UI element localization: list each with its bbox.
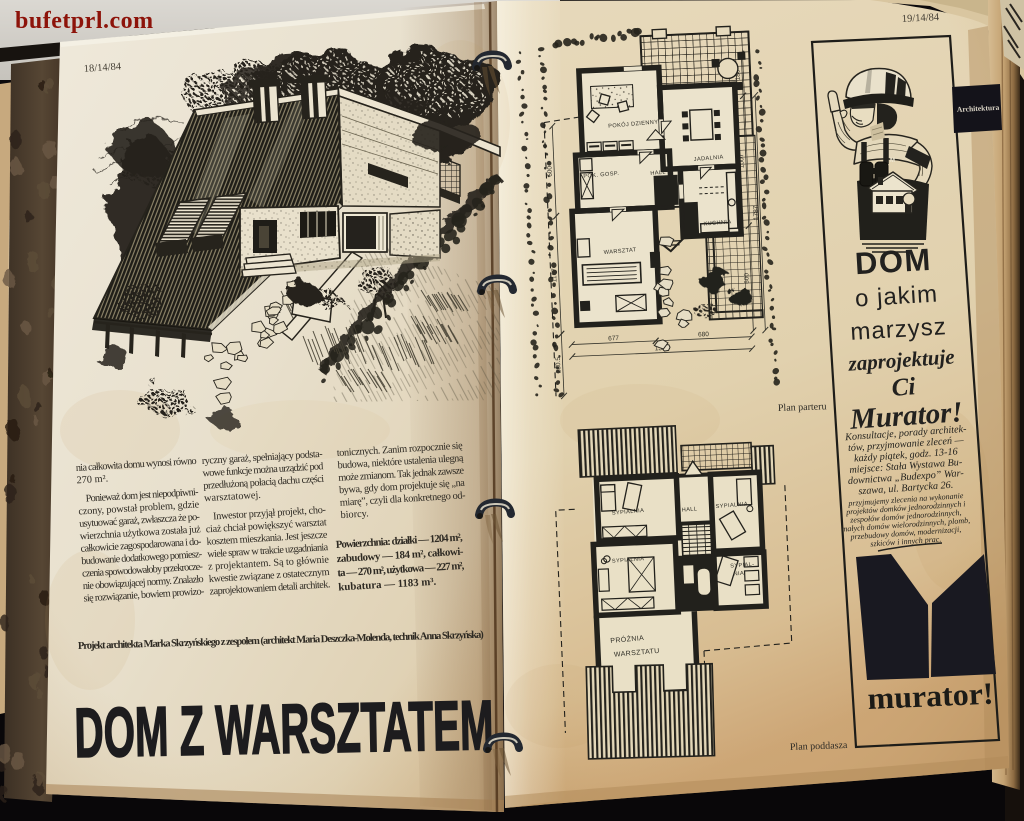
svg-text:murator!: murator! bbox=[867, 676, 994, 716]
svg-text:NIA: NIA bbox=[733, 571, 744, 578]
svg-text:1167: 1167 bbox=[551, 268, 559, 283]
svg-text:677: 677 bbox=[608, 335, 620, 342]
svg-text:M: M bbox=[890, 158, 895, 164]
svg-text:680: 680 bbox=[698, 331, 710, 338]
svg-text:Plan parteru: Plan parteru bbox=[778, 401, 827, 414]
svg-text:bufetprl.com: bufetprl.com bbox=[15, 8, 154, 34]
svg-text:DOM: DOM bbox=[854, 242, 933, 281]
svg-text:600: 600 bbox=[546, 165, 553, 177]
svg-text:Plan poddasza: Plan poddasza bbox=[790, 740, 848, 753]
svg-text:270 m².: 270 m². bbox=[76, 474, 108, 487]
svg-text:o jakim: o jakim bbox=[854, 281, 938, 313]
svg-text:Ci: Ci bbox=[891, 373, 917, 402]
svg-text:DOM Z WARSZTATEM: DOM Z WARSZTATEM bbox=[74, 686, 494, 772]
svg-text:biorcy.: biorcy. bbox=[340, 508, 369, 521]
svg-text:marzysz: marzysz bbox=[850, 313, 948, 346]
svg-text:19/14/84: 19/14/84 bbox=[902, 12, 941, 25]
svg-text:280.5: 280.5 bbox=[555, 356, 563, 373]
